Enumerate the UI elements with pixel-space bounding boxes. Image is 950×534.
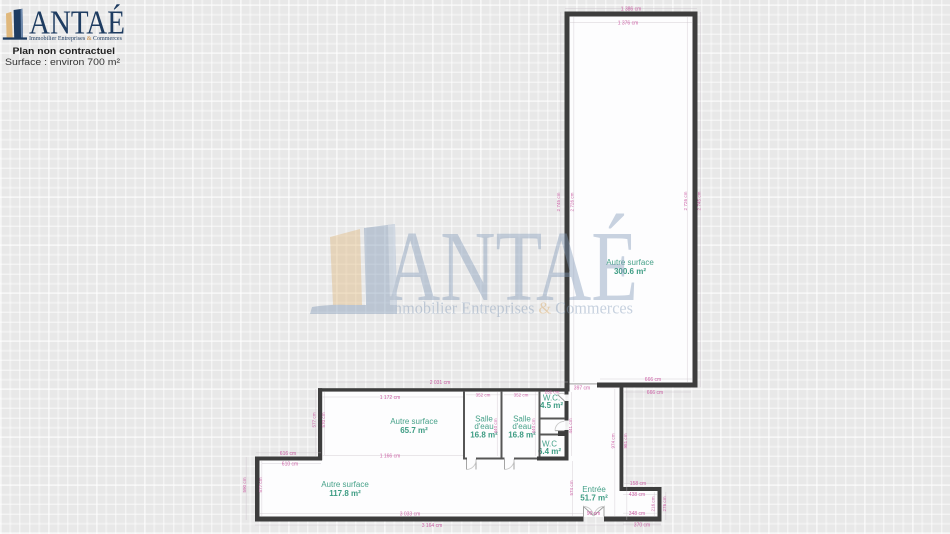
svg-text:352 cm: 352 cm [514,393,529,398]
svg-text:610 cm: 610 cm [282,462,298,468]
svg-text:117.8 m²: 117.8 m² [329,489,361,498]
svg-text:4.5 m²: 4.5 m² [540,401,563,410]
svg-text:6.4 m²: 6.4 m² [538,447,561,456]
svg-text:348 cm: 348 cm [629,511,645,517]
svg-text:1 172 cm: 1 172 cm [380,395,401,401]
svg-text:974 cm: 974 cm [611,433,616,448]
svg-text:Autre surface: Autre surface [321,480,369,489]
svg-text:276 cm: 276 cm [662,496,667,511]
svg-text:3 164 cm: 3 164 cm [422,523,443,529]
svg-text:370 cm: 370 cm [634,522,650,528]
svg-text:216 cm: 216 cm [651,496,656,511]
svg-text:Immobilier Entreprises & Comme: Immobilier Entreprises & Commerces [29,35,123,42]
svg-text:574 cm: 574 cm [569,480,574,495]
svg-text:981 cm: 981 cm [623,433,628,448]
svg-text:570 cm: 570 cm [321,412,326,427]
svg-text:Plan non contractuel: Plan non contractuel [13,46,116,56]
svg-text:232 cm: 232 cm [545,390,560,395]
svg-text:65.7 m²: 65.7 m² [400,426,428,435]
svg-text:590 cm: 590 cm [242,477,247,492]
svg-text:666 cm: 666 cm [645,377,661,383]
svg-text:1 376 cm: 1 376 cm [618,21,639,27]
svg-text:577 cm: 577 cm [258,477,263,492]
svg-text:440 cm: 440 cm [493,418,498,433]
svg-text:1 386 cm: 1 386 cm [621,7,642,13]
svg-text:577 cm: 577 cm [311,412,316,427]
svg-text:616 cm: 616 cm [280,451,296,457]
svg-text:441 cm: 441 cm [568,418,573,433]
svg-text:1 166 cm: 1 166 cm [380,454,401,460]
svg-text:438 cm: 438 cm [629,492,645,498]
svg-text:Autre surface: Autre surface [390,417,438,426]
svg-text:352 cm: 352 cm [476,393,491,398]
svg-text:Surface : environ 700 m²: Surface : environ 700 m² [5,57,120,68]
svg-text:2 031 cm: 2 031 cm [430,380,451,386]
svg-text:3 033 cm: 3 033 cm [400,512,421,518]
svg-text:666 cm: 666 cm [647,390,663,396]
svg-text:90 cm: 90 cm [587,511,601,517]
svg-text:Immobilier Entreprises & Comme: Immobilier Entreprises & Commerces [384,299,633,318]
svg-text:158 cm: 158 cm [630,481,646,487]
svg-text:440 cm: 440 cm [531,418,536,433]
svg-text:51.7 m²: 51.7 m² [580,494,608,503]
svg-text:397 cm: 397 cm [574,386,590,392]
